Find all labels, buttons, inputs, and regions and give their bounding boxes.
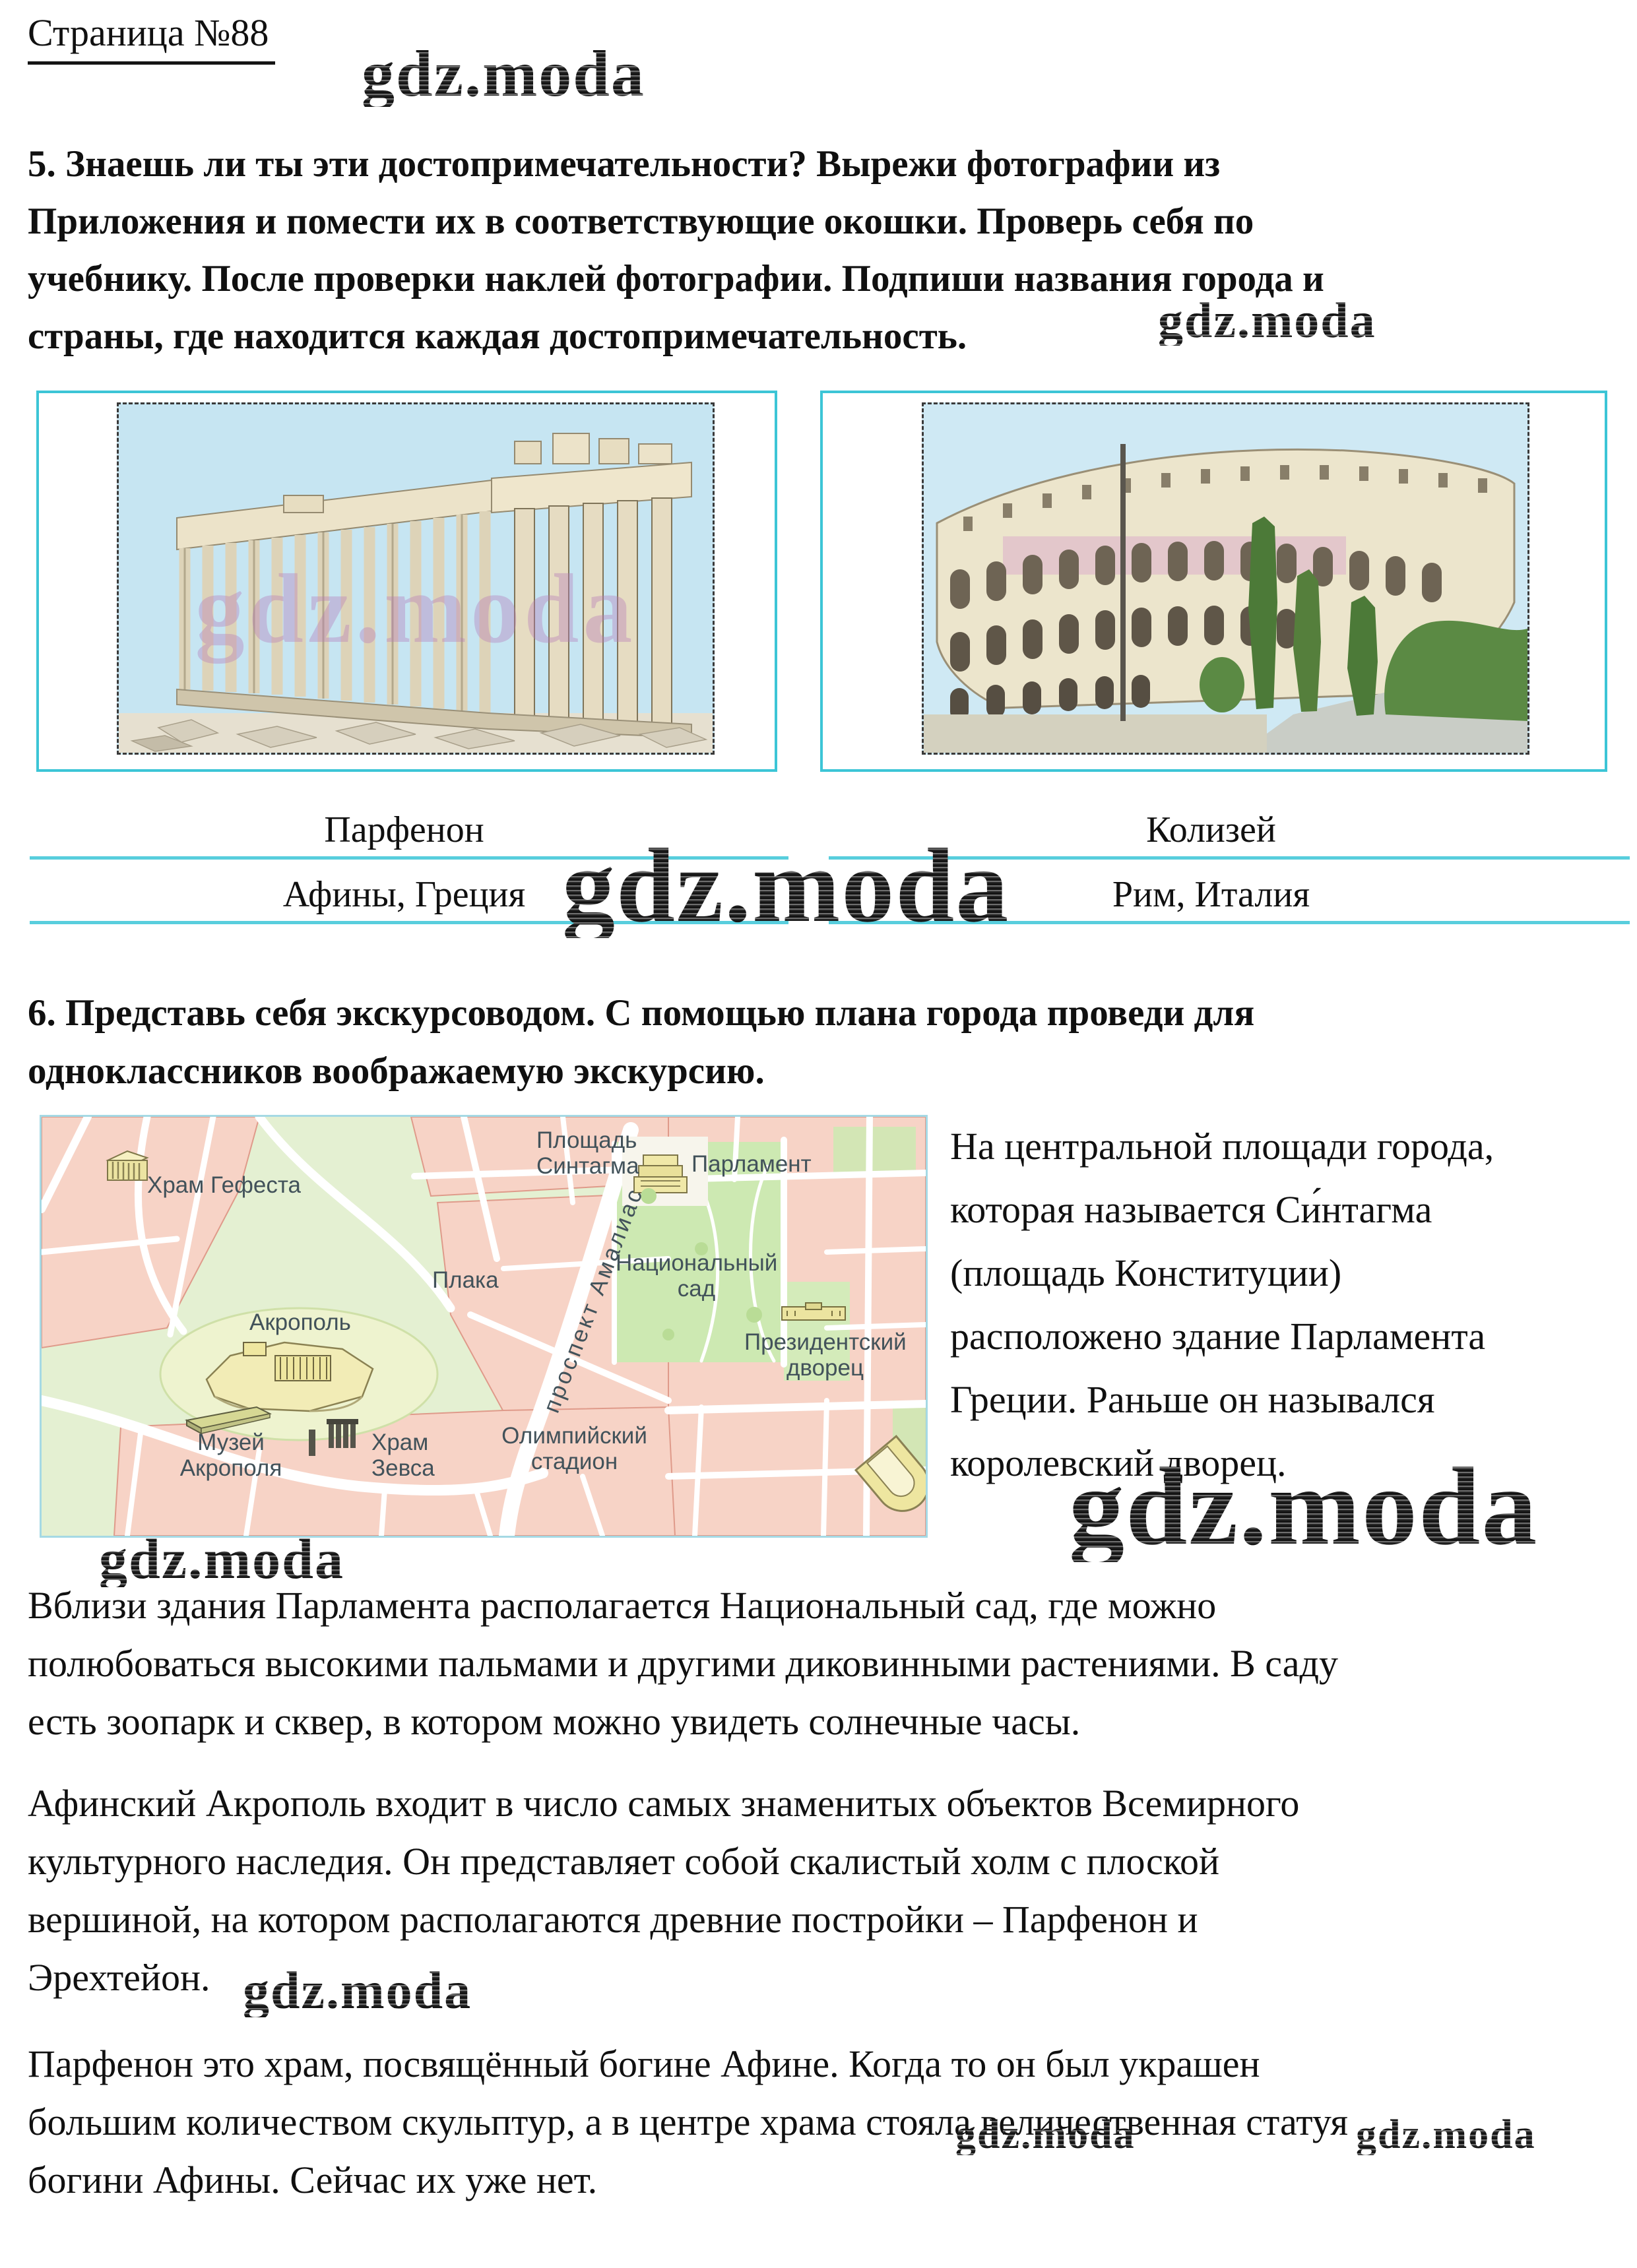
text-line: большим количеством скульптур, а в центр…: [28, 2093, 1348, 2151]
photo-watermark: gdz.moda: [195, 554, 637, 664]
text-line: учебнику. После проверки наклей фотограф…: [28, 250, 1324, 307]
text-line: Эрехтейон.: [28, 1949, 1299, 2007]
gdz-watermark: gdz.moda: [562, 833, 1010, 938]
athens-city-map: Храм Гефеста Площадь Синтагма Парламент …: [40, 1115, 928, 1538]
gdz-watermark: gdz.moda: [362, 41, 645, 107]
map-label-acropolis-museum: Музей Акрополя: [162, 1430, 300, 1481]
map-label-hephaestus: Храм Гефеста: [147, 1172, 301, 1198]
parthenon-photo-art: gdz.moda: [119, 404, 713, 753]
text-line: богини Афины. Сейчас их уже нет.: [28, 2151, 1348, 2209]
colosseum-photo-art: [924, 404, 1527, 753]
gdz-watermark: gdz.moda: [99, 1530, 344, 1587]
text-line: одноклассников воображаемую экскурсию.: [28, 1042, 1254, 1100]
paragraph-parthenon: Парфенон это храм, посвящённый богине Аф…: [28, 2035, 1348, 2209]
text-line: (площадь Конституции): [950, 1242, 1494, 1305]
text-line: Парфенон это храм, посвящённый богине Аф…: [28, 2035, 1348, 2093]
map-label-garden: Национальный сад: [616, 1250, 777, 1302]
workbook-page: Страница №88 gdz.moda gdz.moda gdz.moda …: [0, 0, 1637, 2268]
answer-text-syntagma: На центральной площади города, которая н…: [950, 1115, 1494, 1495]
gdz-watermark: gdz.moda: [1069, 1451, 1538, 1562]
map-label-syntagma: Площадь Синтагма: [536, 1127, 682, 1179]
text-line: полюбоваться высокими пальмами и другими…: [28, 1635, 1338, 1693]
text-line: 6. Представь себя экскурсоводом. С помощ…: [28, 984, 1254, 1042]
text-line: На центральной площади города,: [950, 1115, 1494, 1178]
task5-text: 5. Знаешь ли ты эти достопримечательност…: [28, 135, 1324, 365]
text-line: Приложения и помести их в соответствующи…: [28, 193, 1324, 250]
gdz-watermark: gdz.moda: [1356, 2114, 1536, 2155]
text-line: есть зоопарк и сквер, в котором можно ув…: [28, 1693, 1338, 1751]
gdz-watermark: gdz.moda: [243, 1965, 472, 2017]
colosseum-photo: [922, 402, 1529, 755]
map-label-zeus-temple: Храм Зевса: [371, 1430, 435, 1481]
map-label-acropolis: Акрополь: [249, 1309, 351, 1335]
gdz-watermark: gdz.moda: [1158, 296, 1376, 346]
task6-text: 6. Представь себя экскурсоводом. С помощ…: [28, 984, 1254, 1100]
page-title: Страница №88: [28, 11, 275, 65]
gdz-watermark: gdz.moda: [955, 2114, 1136, 2155]
lamp-pole: [1120, 444, 1126, 721]
text-line: которая называется Си́нтагма: [950, 1178, 1494, 1242]
text-line: расположено здание Парламента: [950, 1305, 1494, 1368]
paragraph-acropolis: Афинский Акрополь входит в число самых з…: [28, 1775, 1299, 2007]
text-line: 5. Знаешь ли ты эти достопримечательност…: [28, 135, 1324, 193]
map-label-presidential-palace: Президентский дворец: [744, 1329, 906, 1381]
text-line: Афинский Акрополь входит в число самых з…: [28, 1775, 1299, 1833]
map-label-parliament: Парламент: [691, 1151, 812, 1177]
paragraph-national-garden: Вблизи здания Парламента располагается Н…: [28, 1577, 1338, 1751]
map-label-plaka: Плака: [432, 1267, 499, 1293]
photo-frame-parthenon: gdz.moda: [36, 391, 777, 772]
text-line: Греции. Раньше он назывался: [950, 1368, 1494, 1432]
map-label-olympic-stadium: Олимпийский стадион: [490, 1423, 658, 1474]
parthenon-photo: gdz.moda: [117, 402, 715, 755]
text-line: культурного наследия. Он представляет со…: [28, 1833, 1299, 1891]
photo-frame-colosseum: [820, 391, 1607, 772]
text-line: страны, где находится каждая достопримеч…: [28, 307, 1324, 365]
text-line: вершиной, на котором располагаются древн…: [28, 1891, 1299, 1949]
